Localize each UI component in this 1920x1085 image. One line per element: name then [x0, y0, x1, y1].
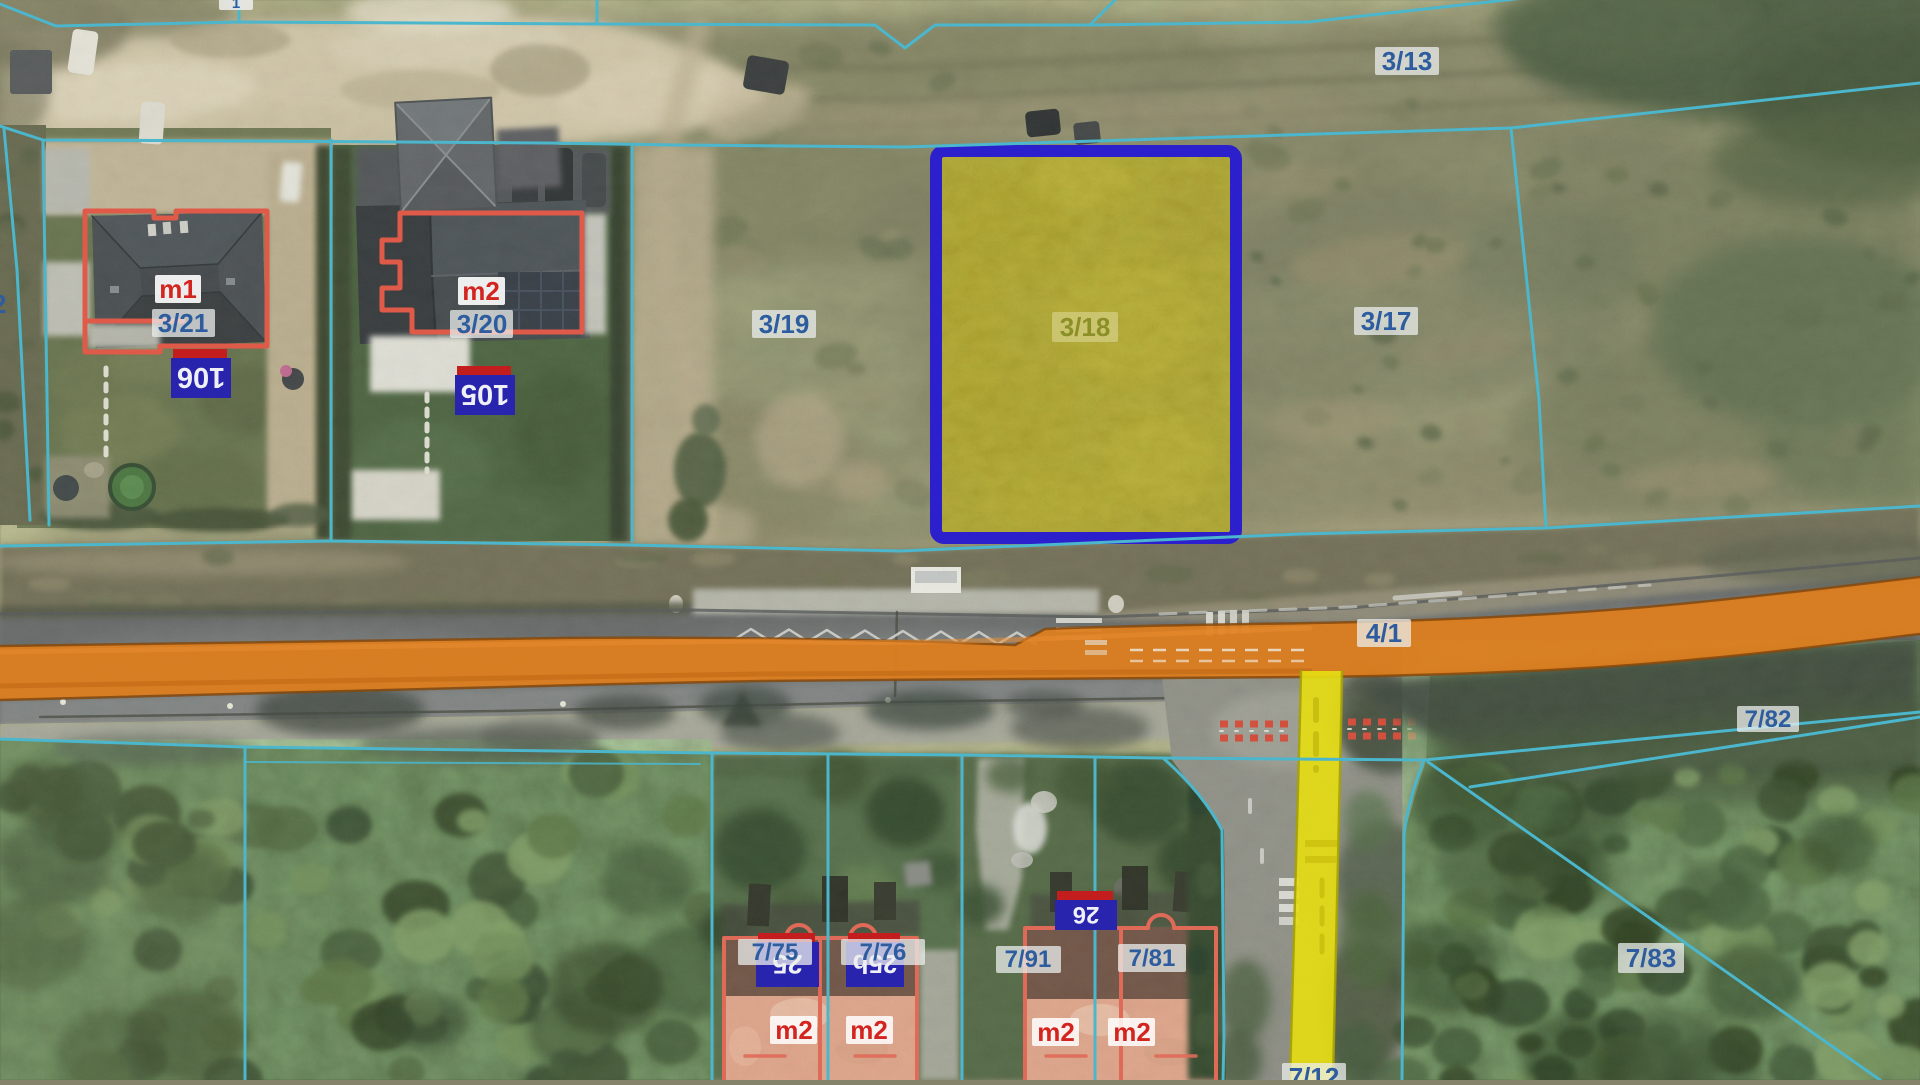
- svg-text:105: 105: [461, 378, 509, 410]
- svg-text:3/18: 3/18: [1060, 312, 1111, 342]
- svg-text:2: 2: [0, 289, 6, 319]
- svg-text:3/21: 3/21: [158, 308, 209, 338]
- svg-text:7/12: 7/12: [1289, 1062, 1340, 1080]
- svg-text:26: 26: [1073, 901, 1100, 928]
- svg-text:m2: m2: [850, 1015, 888, 1045]
- svg-text:m2: m2: [1037, 1017, 1075, 1047]
- svg-text:3/17: 3/17: [1361, 306, 1412, 336]
- svg-text:1: 1: [232, 0, 240, 12]
- svg-text:7/76: 7/76: [860, 939, 907, 966]
- svg-text:7/91: 7/91: [1005, 946, 1052, 973]
- svg-text:7/81: 7/81: [1129, 945, 1176, 972]
- svg-text:3/13: 3/13: [1382, 46, 1433, 76]
- svg-text:3/20: 3/20: [457, 309, 508, 339]
- svg-text:7/75: 7/75: [752, 939, 799, 966]
- svg-text:m1: m1: [159, 274, 197, 304]
- svg-text:7/82: 7/82: [1745, 706, 1792, 733]
- svg-text:7/83: 7/83: [1626, 943, 1677, 973]
- svg-text:m2: m2: [775, 1015, 813, 1045]
- svg-text:m2: m2: [1113, 1017, 1151, 1047]
- svg-text:106: 106: [177, 361, 225, 393]
- svg-text:3/19: 3/19: [759, 309, 810, 339]
- svg-text:4/1: 4/1: [1366, 618, 1402, 648]
- svg-text:m2: m2: [462, 276, 500, 306]
